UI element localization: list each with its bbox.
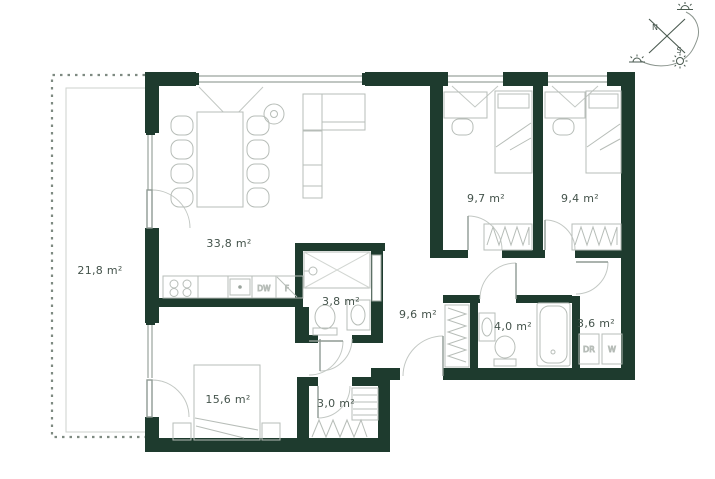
toilet-icon — [494, 336, 516, 366]
room-label-bath-small: 3,8 m² — [322, 295, 360, 308]
room-label-laundry: 3,6 m² — [577, 317, 615, 330]
bathroom-main-fixtures — [479, 303, 570, 366]
dryer-label: DR — [583, 345, 595, 354]
shower-icon — [304, 252, 370, 288]
room-label-living: 33,8 m² — [206, 237, 251, 250]
bathtub-icon — [537, 303, 570, 366]
sunset-icon — [629, 55, 645, 63]
room-label-bedroom1: 9,7 m² — [467, 192, 505, 205]
bedroom1-furniture — [444, 91, 532, 250]
floor-plan: DW F — [0, 0, 715, 479]
kitchen-unit: DW F — [163, 276, 303, 298]
closet-fixtures — [312, 388, 378, 437]
laundry-appliances: DR W — [579, 334, 622, 364]
washbasin-icon — [479, 313, 495, 341]
stove-icon — [170, 280, 191, 297]
room-label-bath-main: 4,0 m² — [494, 320, 532, 333]
compass-north-label: N — [652, 23, 658, 32]
sunrise-icon — [677, 2, 693, 10]
living-furniture — [171, 94, 365, 207]
hall-wardrobe — [445, 305, 469, 367]
floor-plan-svg: DW F — [0, 0, 715, 479]
room-label-balcony: 21,8 m² — [77, 264, 122, 277]
room-label-hall: 9,6 m² — [399, 308, 437, 321]
room-label-bedroom-master: 15,6 m² — [205, 393, 250, 406]
toilet-icon — [313, 305, 337, 335]
sink-icon — [230, 279, 250, 295]
washer-label: W — [608, 345, 616, 354]
dishwasher-label: DW — [257, 284, 271, 293]
balcony-outline — [52, 75, 145, 437]
room-label-closet: 3,0 m² — [317, 397, 355, 410]
compass-rose: N S — [629, 2, 699, 69]
fridge-label: F — [285, 284, 290, 293]
bedroom2-furniture — [545, 91, 621, 250]
compass-south-label: S — [676, 46, 681, 55]
room-label-bedroom2: 9,4 m² — [561, 192, 599, 205]
bathroom-small-fixtures — [304, 252, 370, 335]
sun-icon — [673, 54, 688, 69]
